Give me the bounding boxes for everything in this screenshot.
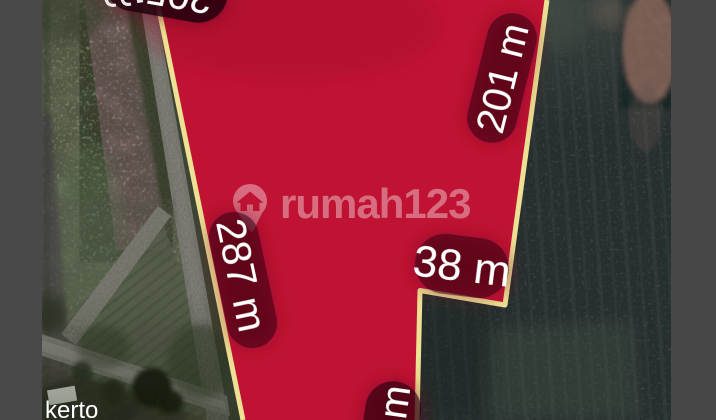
- svg-text:rumah123: rumah123: [280, 180, 470, 227]
- svg-text:kerto: kerto: [45, 397, 98, 420]
